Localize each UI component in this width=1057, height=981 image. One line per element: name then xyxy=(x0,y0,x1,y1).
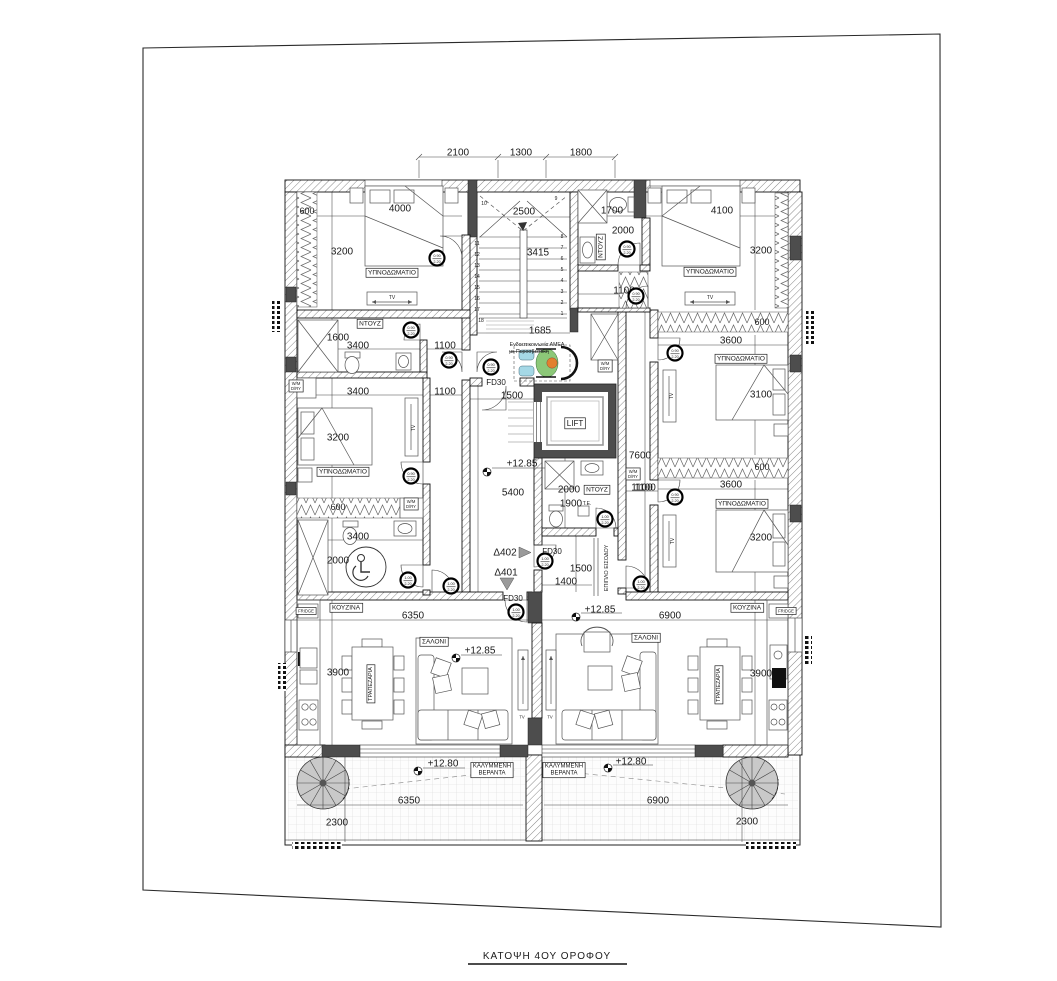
step-10: 10 xyxy=(481,201,487,207)
svg-text:2100: 2100 xyxy=(447,148,470,159)
svg-text:ΚΑΛΥΜΜΕΝΗΒΕΡΑΝΤΑ: ΚΑΛΥΜΜΕΝΗΒΕΡΑΝΤΑ xyxy=(545,764,583,777)
svg-text:6350: 6350 xyxy=(398,796,421,807)
svg-text:FD30: FD30 xyxy=(503,594,523,603)
svg-text:3200: 3200 xyxy=(331,247,354,258)
room-kitchen-l: ΚΟΥΖΙΝΑ xyxy=(330,603,363,612)
door-badge: 0.902.20 xyxy=(404,323,419,338)
dim-3200-lm: 3200 xyxy=(327,433,350,444)
epiplo-label: ΕΠΙΠΛΟ ΕΙΣΟΔΟΥ xyxy=(604,544,610,591)
svg-text:1.00: 1.00 xyxy=(404,576,411,580)
svg-text:W/MD/RY: W/MD/RY xyxy=(406,499,416,509)
lift-label: LIFT xyxy=(565,418,586,429)
svg-text:2.20: 2.20 xyxy=(404,582,411,586)
level-veranda-l: +12.80 xyxy=(428,759,459,770)
svg-text:TV: TV xyxy=(519,714,525,719)
spiral-stair-right xyxy=(726,757,778,809)
svg-text:6900: 6900 xyxy=(659,611,682,622)
room-ntouz-c: ΝΤΟΥΖ xyxy=(584,485,610,494)
level-corridor: +12.85 xyxy=(507,459,538,470)
svg-text:2.20: 2.20 xyxy=(601,521,608,525)
stove-left xyxy=(299,700,318,730)
tv-label-tl: TV xyxy=(389,295,396,301)
svg-text:1.00: 1.00 xyxy=(541,557,548,561)
step-14: 14 xyxy=(474,274,480,280)
dim-3400-b: 3400 xyxy=(347,387,370,398)
svg-text:+12.85: +12.85 xyxy=(507,459,538,470)
svg-text:1685: 1685 xyxy=(529,326,552,337)
svg-text:Δ401: Δ401 xyxy=(494,568,518,579)
svg-text:2.20: 2.20 xyxy=(512,614,519,618)
svg-text:W/MD/RY: W/MD/RY xyxy=(628,469,638,479)
step-4: 4 xyxy=(561,278,564,284)
svg-text:2500: 2500 xyxy=(513,207,536,218)
room-bedroom-tl: ΥΠΝΟΔΩΜΑΤΙΟ xyxy=(366,268,418,277)
step-5: 5 xyxy=(561,267,564,273)
svg-text:ΥΠΝΟΔΩΜΑΤΙΟ: ΥΠΝΟΔΩΜΑΤΙΟ xyxy=(718,500,766,507)
dim-3200-tl: 3200 xyxy=(331,247,354,258)
svg-text:3400: 3400 xyxy=(347,387,370,398)
svg-text:1700: 1700 xyxy=(601,206,624,217)
svg-text:0.90: 0.90 xyxy=(671,349,678,353)
fd30-c: FD30 xyxy=(503,594,523,603)
room-dining-l: ΤΡΑΠΕΖΑΡΙΑ xyxy=(367,665,375,703)
dim-2000-tr: 2000 xyxy=(612,226,635,237)
svg-text:2.20: 2.20 xyxy=(447,588,454,592)
tv-label-rl: TV xyxy=(670,537,676,544)
step-2: 2 xyxy=(561,300,564,306)
shower-left-wc xyxy=(298,520,328,595)
door-badge: 0.902.20 xyxy=(484,360,499,375)
fridge-r: FRIDGE xyxy=(776,607,796,614)
dim-6900-v: 6900 xyxy=(647,796,670,807)
svg-text:1400: 1400 xyxy=(555,577,578,588)
svg-text:600: 600 xyxy=(754,462,769,472)
svg-text:11: 11 xyxy=(474,241,479,247)
step-15: 15 xyxy=(474,285,480,291)
svg-text:12: 12 xyxy=(474,252,480,258)
step-3: 3 xyxy=(561,289,564,295)
dim-600-rm: 600 xyxy=(754,317,769,327)
step-13: 13 xyxy=(474,263,480,269)
svg-text:2.20: 2.20 xyxy=(445,362,452,366)
svg-text:10: 10 xyxy=(481,201,487,207)
svg-text:FD30: FD30 xyxy=(486,378,506,387)
veranda-area xyxy=(285,755,800,850)
svg-text:1.00: 1.00 xyxy=(601,515,608,519)
dim-3600-rm: 3600 xyxy=(720,336,743,347)
svg-text:3100: 3100 xyxy=(750,390,773,401)
dim-7600: 7600 xyxy=(629,451,652,462)
svg-text:1.00: 1.00 xyxy=(447,582,454,586)
svg-text:14: 14 xyxy=(474,274,480,280)
dim-6350: 6350 xyxy=(402,611,425,622)
room-bedroom-tr: ΥΠΝΟΔΩΜΑΤΙΟ xyxy=(684,267,736,276)
dim-top-1300: 1300 xyxy=(510,148,533,159)
fd30-a: FD30 xyxy=(486,378,506,387)
svg-text:3200: 3200 xyxy=(327,433,350,444)
svg-text:600: 600 xyxy=(299,206,314,216)
door-badge: 1.002.20 xyxy=(509,605,524,620)
step-18: 18 xyxy=(478,318,484,324)
svg-text:5: 5 xyxy=(561,267,564,273)
svg-text:ΚΟΥΖΙΝΑ: ΚΟΥΖΙΝΑ xyxy=(332,604,361,611)
svg-text:TV: TV xyxy=(411,424,417,431)
svg-text:3600: 3600 xyxy=(720,480,743,491)
step-8: 8 xyxy=(561,234,564,240)
bed-top-right xyxy=(648,186,755,266)
svg-text:ΤΡΑΠΕΖΑΡΙΑ: ΤΡΑΠΕΖΑΡΙΑ xyxy=(716,668,722,702)
svg-text:FRIDGE: FRIDGE xyxy=(298,608,314,613)
dim-1500-a: 1500 xyxy=(501,391,524,402)
svg-text:4000: 4000 xyxy=(389,204,412,215)
svg-text:TV: TV xyxy=(670,537,676,544)
dim-1500-b: 1500 xyxy=(570,564,593,575)
slider-bottom-right xyxy=(542,745,695,757)
wm-1: W/MD/RY xyxy=(598,360,612,372)
svg-text:2.20: 2.20 xyxy=(433,260,440,264)
svg-text:2.20: 2.20 xyxy=(541,563,548,567)
title-block: ΚΑΤΟΨΗ 4ΟΥ ΟΡΟΦΟΥ xyxy=(468,951,627,964)
svg-text:7600: 7600 xyxy=(629,451,652,462)
toilet-left-bath xyxy=(345,352,360,374)
room-bedroom-rl: ΥΠΝΟΔΩΜΑΤΙΟ xyxy=(716,499,768,508)
step-6: 6 xyxy=(561,256,564,262)
step-16: 16 xyxy=(474,296,480,302)
door-badge: 0.902.20 xyxy=(629,289,644,304)
amea-note: Ενδοεπικοινωνία ΑΜΕΑ xyxy=(510,342,565,348)
svg-text:ΥΠΝΟΔΩΜΑΤΙΟ: ΥΠΝΟΔΩΜΑΤΙΟ xyxy=(319,468,367,475)
svg-text:0.90: 0.90 xyxy=(671,493,678,497)
svg-text:3900: 3900 xyxy=(327,668,350,679)
level-right-living: +12.85 xyxy=(585,605,616,616)
veranda-divider-wall xyxy=(526,755,542,841)
room-saloni-l: ΣΑΛΟΝΙ xyxy=(420,637,448,646)
svg-text:1900: 1900 xyxy=(560,499,583,510)
svg-text:2000: 2000 xyxy=(327,556,350,567)
dim-600-tl: 600 xyxy=(299,206,314,216)
dim-3900-l: 3900 xyxy=(327,668,350,679)
svg-text:Δ402: Δ402 xyxy=(493,548,517,559)
step-17: 17 xyxy=(474,307,480,313)
svg-text:3900: 3900 xyxy=(750,669,773,680)
dim-1100-a: 1100 xyxy=(434,341,456,352)
dim-4100: 4100 xyxy=(711,206,734,217)
svg-text:6350: 6350 xyxy=(402,611,425,622)
svg-text:2.20: 2.20 xyxy=(623,251,630,255)
door-badge: 0.902.20 xyxy=(668,346,683,361)
svg-text:0.90: 0.90 xyxy=(407,472,414,476)
stove-right xyxy=(769,700,787,730)
dim-3200-tr: 3200 xyxy=(750,246,773,257)
step-11: 11 xyxy=(474,241,479,247)
dim-3415: 3415 xyxy=(527,248,550,259)
dim-600-lm: 600 xyxy=(330,502,345,512)
room-saloni-r: ΣΑΛΟΝΙ xyxy=(632,633,660,642)
door-badge: 1.002.20 xyxy=(444,579,459,594)
svg-text:W/MD/RY: W/MD/RY xyxy=(291,381,301,391)
dim-2300-r: 2300 xyxy=(736,817,759,828)
svg-text:ΚΑΛΥΜΜΕΝΗΒΕΡΑΝΤΑ: ΚΑΛΥΜΜΕΝΗΒΕΡΑΝΤΑ xyxy=(473,764,511,777)
dim-top-2100: 2100 xyxy=(447,148,470,159)
svg-text:με Πυροσβεστική: με Πυροσβεστική xyxy=(509,348,549,355)
svg-text:2.20: 2.20 xyxy=(671,355,678,359)
svg-text:9: 9 xyxy=(555,196,558,202)
level-left-living: +12.85 xyxy=(465,646,496,657)
door-badge: 0.902.20 xyxy=(442,353,457,368)
dim-2500: 2500 xyxy=(513,207,536,218)
door-badge: 1.002.20 xyxy=(634,577,649,592)
svg-text:17: 17 xyxy=(474,307,480,313)
svg-text:2.20: 2.20 xyxy=(671,499,678,503)
slider-bottom-left xyxy=(360,745,500,757)
svg-text:+12.80: +12.80 xyxy=(616,757,647,768)
svg-text:2.20: 2.20 xyxy=(632,298,639,302)
svg-text:13: 13 xyxy=(474,263,480,269)
floor-plan-drawing: 21001300180060040003200ΥΠΝΟΔΩΜΑΤΙΟTV2500… xyxy=(0,0,1057,981)
svg-text:1100: 1100 xyxy=(434,387,456,398)
svg-text:FRIDGE: FRIDGE xyxy=(778,608,794,613)
svg-text:0.90: 0.90 xyxy=(632,292,639,296)
svg-text:1100: 1100 xyxy=(634,483,656,494)
dim-5400: 5400 xyxy=(502,488,525,499)
svg-text:2000: 2000 xyxy=(558,485,581,496)
wm-2: W/MD/RY xyxy=(626,468,640,480)
svg-text:2300: 2300 xyxy=(326,818,349,829)
dim-6350-v: 6350 xyxy=(398,796,421,807)
floor-plan-page: 21001300180060040003200ΥΠΝΟΔΩΜΑΤΙΟTV2500… xyxy=(0,0,1057,981)
tv-label-lm: TV xyxy=(411,424,417,431)
svg-text:5400: 5400 xyxy=(502,488,525,499)
room-kitchen-r: ΚΟΥΖΙΝΑ xyxy=(731,603,764,612)
te-label: Τ.Ε. xyxy=(583,501,592,507)
dim-1700: 1700 xyxy=(601,206,624,217)
tv-label-wall-r: TV xyxy=(547,714,553,719)
svg-text:1300: 1300 xyxy=(510,148,533,159)
tv-label-tr: TV xyxy=(707,295,714,301)
dim-3400-c: 3400 xyxy=(347,532,370,543)
svg-text:3: 3 xyxy=(561,289,564,295)
svg-text:1500: 1500 xyxy=(570,564,593,575)
d401-label: Δ401 xyxy=(494,568,518,579)
svg-text:TV: TV xyxy=(547,714,553,719)
svg-text:3400: 3400 xyxy=(347,532,370,543)
svg-text:ΥΠΝΟΔΩΜΑΤΙΟ: ΥΠΝΟΔΩΜΑΤΙΟ xyxy=(686,268,734,275)
door-badge: 1.002.20 xyxy=(401,573,416,588)
svg-text:1.00: 1.00 xyxy=(637,580,644,584)
svg-text:ΝΤΟΥΖ: ΝΤΟΥΖ xyxy=(597,236,604,258)
svg-text:LIFT: LIFT xyxy=(567,419,584,428)
dim-1400: 1400 xyxy=(555,577,578,588)
shower-left-bath xyxy=(298,320,338,372)
svg-text:ΣΑΛΟΝΙ: ΣΑΛΟΝΙ xyxy=(422,638,446,645)
dim-3200-rl: 3200 xyxy=(750,533,773,544)
svg-text:0.90: 0.90 xyxy=(487,363,494,367)
tv-label-rm: TV xyxy=(669,392,675,399)
svg-text:+12.85: +12.85 xyxy=(465,646,496,657)
dim-1100-c: 1100 xyxy=(634,483,656,494)
door-badge: 0.902.20 xyxy=(404,469,419,484)
svg-text:Τ.Ε.: Τ.Ε. xyxy=(583,501,592,507)
svg-text:ΣΑΛΟΝΙ: ΣΑΛΟΝΙ xyxy=(634,634,658,641)
door-badge: 0.902.20 xyxy=(430,251,445,266)
svg-text:0.90: 0.90 xyxy=(445,356,452,360)
dim-2000-c: 2000 xyxy=(558,485,581,496)
fridge-l: FRIDGE xyxy=(296,607,316,614)
d402-label: Δ402 xyxy=(493,548,517,559)
svg-text:ΕΠΙΠΛΟ ΕΙΣΟΔΟΥ: ΕΠΙΠΛΟ ΕΙΣΟΔΟΥ xyxy=(604,544,610,591)
svg-text:ΤΡΑΠΕΖΑΡΙΑ: ΤΡΑΠΕΖΑΡΙΑ xyxy=(368,667,374,701)
door-badge: 0.902.20 xyxy=(668,490,683,505)
svg-text:4: 4 xyxy=(561,278,564,284)
dim-3400-a: 3400 xyxy=(347,341,370,352)
svg-text:+12.85: +12.85 xyxy=(585,605,616,616)
svg-text:ΚΟΥΖΙΝΑ: ΚΟΥΖΙΝΑ xyxy=(733,604,762,611)
svg-text:3600: 3600 xyxy=(720,336,743,347)
svg-text:2.20: 2.20 xyxy=(487,369,494,373)
dim-1100-b: 1100 xyxy=(434,387,456,398)
step-12: 12 xyxy=(474,252,480,258)
level-veranda-r: +12.80 xyxy=(616,757,647,768)
svg-text:7: 7 xyxy=(561,245,564,251)
svg-text:600: 600 xyxy=(754,317,769,327)
tv-label-wall-l: TV xyxy=(519,714,525,719)
dim-3900-r: 3900 xyxy=(750,669,773,680)
wm-4: W/MD/RY xyxy=(289,380,303,392)
svg-text:0.90: 0.90 xyxy=(433,254,440,258)
accessible-wc-icon xyxy=(346,547,386,587)
svg-text:TV: TV xyxy=(707,295,714,301)
svg-text:1.00: 1.00 xyxy=(512,608,519,612)
wm-3: W/MD/RY xyxy=(404,498,418,510)
room-ntouz-tr: ΝΤΟΥΖ xyxy=(596,234,605,260)
svg-text:2.20: 2.20 xyxy=(407,332,414,336)
svg-text:2000: 2000 xyxy=(612,226,635,237)
dim-600-rm2: 600 xyxy=(754,462,769,472)
svg-text:ΝΤΟΥΖ: ΝΤΟΥΖ xyxy=(586,486,608,493)
svg-text:8: 8 xyxy=(561,234,564,240)
svg-text:ΝΤΟΥΖ: ΝΤΟΥΖ xyxy=(359,320,381,327)
room-ntouz-l: ΝΤΟΥΖ xyxy=(357,319,383,328)
svg-text:ΥΠΝΟΔΩΜΑΤΙΟ: ΥΠΝΟΔΩΜΑΤΙΟ xyxy=(368,269,416,276)
dim-4000: 4000 xyxy=(389,204,412,215)
svg-text:ΥΠΝΟΔΩΜΑΤΙΟ: ΥΠΝΟΔΩΜΑΤΙΟ xyxy=(717,355,765,362)
storage-right-hall xyxy=(591,314,618,360)
svg-text:TV: TV xyxy=(389,295,396,301)
door-badge: 1.002.20 xyxy=(598,512,613,527)
step-9: 9 xyxy=(555,196,558,202)
svg-text:3200: 3200 xyxy=(750,533,773,544)
svg-text:15: 15 xyxy=(474,285,480,291)
dim-2300-l: 2300 xyxy=(326,818,349,829)
svg-text:+12.80: +12.80 xyxy=(428,759,459,770)
dim-6900: 6900 xyxy=(659,611,682,622)
svg-text:18: 18 xyxy=(478,318,484,324)
svg-text:2.20: 2.20 xyxy=(637,586,644,590)
dim-1685: 1685 xyxy=(529,326,552,337)
svg-text:3415: 3415 xyxy=(527,248,550,259)
svg-text:1500: 1500 xyxy=(501,391,524,402)
svg-text:4100: 4100 xyxy=(711,206,734,217)
dim-1900: 1900 xyxy=(560,499,583,510)
step-7: 7 xyxy=(561,245,564,251)
svg-text:TV: TV xyxy=(669,392,675,399)
door-badge: 0.902.20 xyxy=(620,242,635,257)
step-1: 1 xyxy=(561,311,564,317)
svg-text:1100: 1100 xyxy=(434,341,456,352)
svg-text:1: 1 xyxy=(561,311,564,317)
dim-top-1800: 1800 xyxy=(570,148,593,159)
svg-text:6900: 6900 xyxy=(647,796,670,807)
svg-text:16: 16 xyxy=(474,296,480,302)
svg-text:2.20: 2.20 xyxy=(407,478,414,482)
dim-3100: 3100 xyxy=(750,390,773,401)
room-veranda-r: ΚΑΛΥΜΜΕΝΗΒΕΡΑΝΤΑ xyxy=(543,763,585,778)
room-dining-r: ΤΡΑΠΕΖΑΡΙΑ xyxy=(715,666,723,704)
svg-text:3400: 3400 xyxy=(347,341,370,352)
room-veranda-l: ΚΑΛΥΜΜΕΝΗΒΕΡΑΝΤΑ xyxy=(471,763,513,778)
door-badge: 1.002.20 xyxy=(538,554,553,569)
svg-text:0.90: 0.90 xyxy=(623,245,630,249)
svg-text:2300: 2300 xyxy=(736,817,759,828)
dim-3600-rl: 3600 xyxy=(720,480,743,491)
dim-2000-l: 2000 xyxy=(327,556,350,567)
room-bedroom-rm: ΥΠΝΟΔΩΜΑΤΙΟ xyxy=(715,354,767,363)
svg-text:2: 2 xyxy=(561,300,564,306)
svg-text:3200: 3200 xyxy=(750,246,773,257)
svg-text:6: 6 xyxy=(561,256,564,262)
room-bedroom-lm: ΥΠΝΟΔΩΜΑΤΙΟ xyxy=(317,467,369,476)
drawing-title: ΚΑΤΟΨΗ 4ΟΥ ΟΡΟΦΟΥ xyxy=(483,951,611,962)
svg-text:Ενδοεπικοινωνία ΑΜΕΑ: Ενδοεπικοινωνία ΑΜΕΑ xyxy=(510,342,565,348)
svg-text:W/MD/RY: W/MD/RY xyxy=(600,361,610,371)
window-left-kitchen xyxy=(285,620,297,652)
svg-text:0.90: 0.90 xyxy=(407,326,414,330)
amea-note-2: με Πυροσβεστική xyxy=(509,348,549,355)
basin-center-wc xyxy=(581,461,603,475)
svg-text:1800: 1800 xyxy=(570,148,593,159)
window-right-kitchen xyxy=(788,618,802,652)
svg-text:600: 600 xyxy=(330,502,345,512)
spiral-stair-left xyxy=(297,757,349,809)
